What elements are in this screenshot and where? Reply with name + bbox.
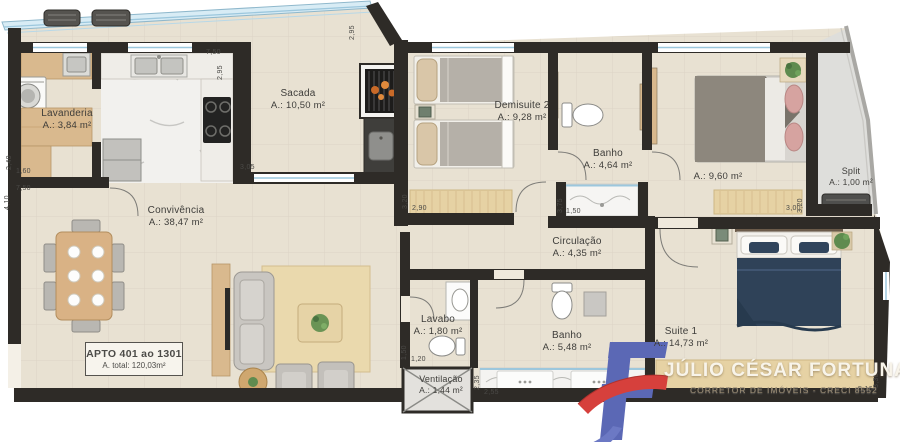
room-label-ventilacao: Ventilação A.: 1,44 m² xyxy=(403,374,479,395)
dimension-label: 1,50 xyxy=(401,345,408,360)
twin-bed xyxy=(414,120,514,168)
room-label-quarto: A.: 9,60 m² xyxy=(676,171,760,182)
suite-bed xyxy=(735,224,843,330)
dimension-label: 1,60 xyxy=(16,168,31,175)
dimension-label: 3,75 xyxy=(557,198,564,213)
room-area: A.: 9,60 m² xyxy=(676,171,760,182)
room-label-banho2: Banho A.: 5,48 m² xyxy=(528,330,606,353)
toilet-icon xyxy=(562,103,603,127)
dimension-label: 7,50 xyxy=(16,185,31,192)
room-label-convivencia: Convivência A.: 38,47 m² xyxy=(130,205,222,228)
room-area: A.: 1,80 m² xyxy=(402,326,474,337)
realtor-name: JÚLIO CÉSAR FORTUNA xyxy=(664,360,879,382)
bath-mat xyxy=(584,292,606,316)
cooktop-icon xyxy=(203,97,231,143)
dining-set xyxy=(44,220,124,332)
room-area: A.: 1,44 m² xyxy=(403,385,479,395)
room-area: A.: 14,73 m² xyxy=(642,338,720,349)
dimension-label: 4,10 xyxy=(4,195,11,210)
room-label-banho1: Banho A.: 4,64 m² xyxy=(572,148,644,171)
coffee-table xyxy=(298,304,342,342)
room-name: Lavabo xyxy=(402,314,474,326)
dimension-label: 2,95 xyxy=(349,25,356,40)
room-area: A.: 4,35 m² xyxy=(534,248,620,259)
unit-info-box: APTO 401 ao 1301 A. total: 120,03m² xyxy=(85,342,183,376)
dimension-label: 2,55 xyxy=(484,389,499,396)
room-name: Banho xyxy=(528,330,606,342)
room-name: Lavanderia xyxy=(31,108,103,120)
room-area: A.: 3,84 m² xyxy=(31,120,103,131)
room-name: Sacada xyxy=(258,88,338,100)
room-name: Suite 1 xyxy=(642,326,720,338)
room-area: A.: 9,28 m² xyxy=(479,112,565,123)
dimension-label: 3,05 xyxy=(240,164,255,171)
dimension-label: 7,50 xyxy=(206,49,221,56)
dimension-label: 1,20 xyxy=(411,356,426,363)
room-area: A.: 38,47 m² xyxy=(130,217,222,228)
room-label-lavabo: Lavabo A.: 1,80 m² xyxy=(402,314,474,337)
dimension-label: 3,20 xyxy=(402,194,409,209)
room-label-split: Split A.: 1,00 m² xyxy=(820,166,882,187)
plant-icon xyxy=(832,232,852,250)
barbecue-counter xyxy=(364,118,398,176)
realtor-subtitle: CORRETOR DE IMÓVEIS - CRECI 8552 xyxy=(690,385,890,395)
toilet-icon xyxy=(429,336,465,356)
fridge-icon xyxy=(103,139,141,181)
dimension-label: 2,95 xyxy=(217,65,224,80)
unit-label: APTO 401 ao 1301 xyxy=(86,348,182,361)
room-name: Convivência xyxy=(130,205,222,217)
room-label-circulacao: Circulação A.: 4,35 m² xyxy=(534,236,620,259)
room-area: A.: 4,64 m² xyxy=(572,160,644,171)
room-name: Ventilação xyxy=(403,374,479,385)
unit-total-area: A. total: 120,03m² xyxy=(86,361,182,371)
room-area: A.: 1,00 m² xyxy=(820,177,882,187)
room-area: A.: 5,48 m² xyxy=(528,342,606,353)
plant-icon xyxy=(780,58,806,82)
room-name: Split xyxy=(820,166,882,177)
double-bed xyxy=(695,76,809,162)
toilet-icon xyxy=(552,283,572,319)
sofa xyxy=(234,272,274,370)
room-label-sacada: Sacada A.: 10,50 m² xyxy=(258,88,338,111)
dimension-label: 3,00 xyxy=(786,205,801,212)
twin-bed xyxy=(414,56,514,104)
floorplan-page: Lavanderia A.: 3,84 m² Sacada A.: 10,50 … xyxy=(0,0,900,442)
room-area: A.: 10,50 m² xyxy=(258,100,338,111)
room-name: Circulação xyxy=(534,236,620,248)
nightstand xyxy=(415,105,435,119)
room-label-demisuite2: Demisuite 2 A.: 9,28 m² xyxy=(479,100,565,123)
kitchen-sink-icon xyxy=(131,55,187,77)
dimension-label: 1,50 xyxy=(566,208,581,215)
room-label-lavanderia: Lavanderia A.: 3,84 m² xyxy=(31,108,103,131)
room-label-suite1: Suite 1 A.: 14,73 m² xyxy=(642,326,720,349)
room-name: Demisuite 2 xyxy=(479,100,565,112)
dimension-label: 2,90 xyxy=(412,205,427,212)
dimension-label: 2,35 xyxy=(474,375,481,390)
tv-panel xyxy=(212,264,230,376)
dimension-label: 2,40 xyxy=(6,155,13,170)
room-name: Banho xyxy=(572,148,644,160)
